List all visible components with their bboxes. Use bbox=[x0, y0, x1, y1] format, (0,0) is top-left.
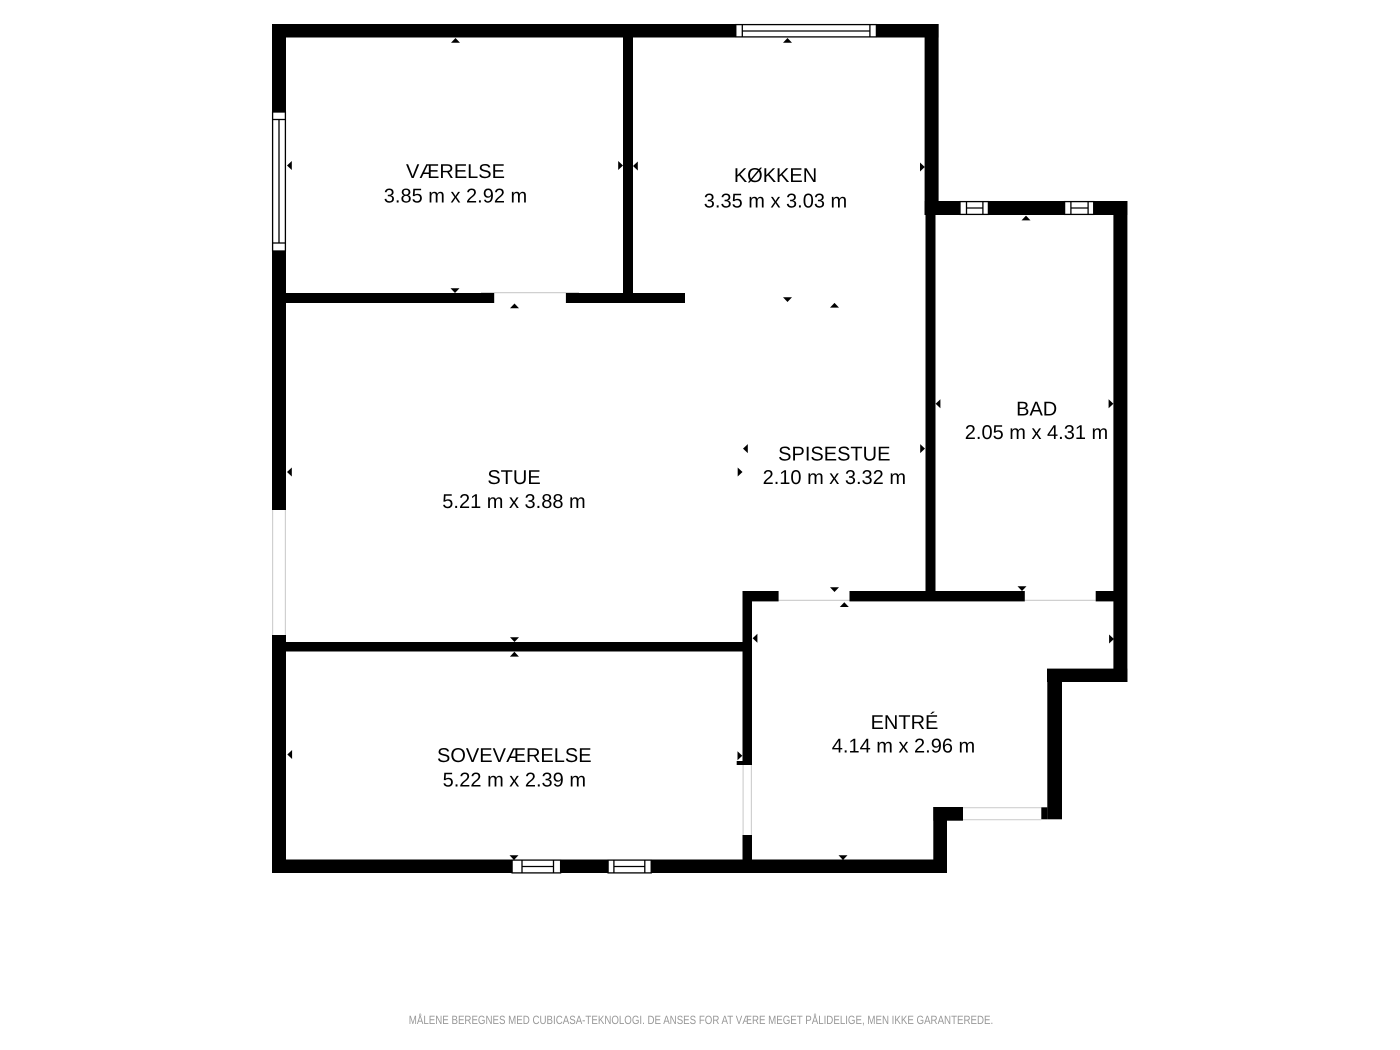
svg-text:STUE: STUE bbox=[487, 467, 540, 489]
svg-text:2.05 m x 4.31 m: 2.05 m x 4.31 m bbox=[965, 422, 1108, 444]
svg-text:SPISESTUE: SPISESTUE bbox=[778, 444, 890, 466]
svg-text:ENTRÉ: ENTRÉ bbox=[871, 711, 939, 734]
svg-text:VÆRELSE: VÆRELSE bbox=[406, 161, 505, 183]
svg-text:MÅLENE BEREGNES MED CUBICASA-T: MÅLENE BEREGNES MED CUBICASA-TEKNOLOGI. … bbox=[409, 1013, 993, 1027]
svg-text:5.22 m x 2.39 m: 5.22 m x 2.39 m bbox=[443, 770, 586, 792]
svg-text:3.35 m x 3.03 m: 3.35 m x 3.03 m bbox=[704, 190, 847, 212]
svg-text:3.85 m x 2.92 m: 3.85 m x 2.92 m bbox=[384, 186, 527, 208]
svg-text:BAD: BAD bbox=[1016, 399, 1057, 421]
svg-text:2.10 m x 3.32 m: 2.10 m x 3.32 m bbox=[763, 467, 906, 489]
svg-text:5.21 m x 3.88 m: 5.21 m x 3.88 m bbox=[442, 491, 585, 513]
svg-text:SOVEVÆRELSE: SOVEVÆRELSE bbox=[437, 745, 592, 767]
svg-text:4.14 m x 2.96 m: 4.14 m x 2.96 m bbox=[832, 736, 975, 758]
svg-text:KØKKEN: KØKKEN bbox=[734, 165, 817, 187]
